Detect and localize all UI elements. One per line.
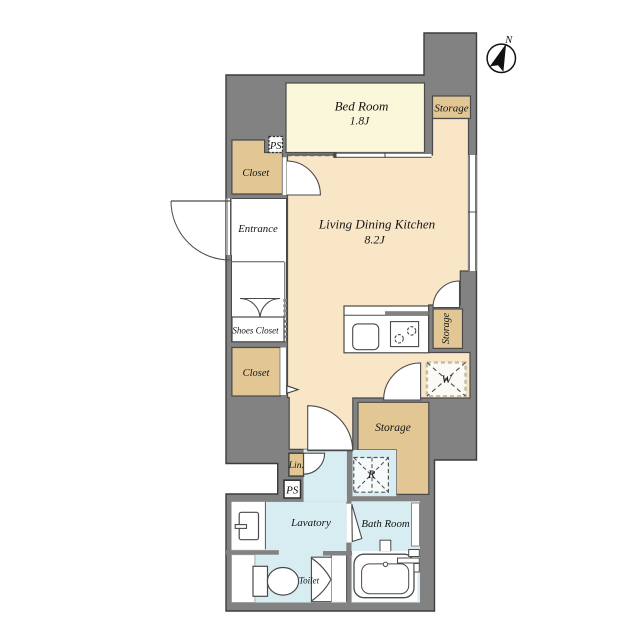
svg-text:Closet: Closet [243, 368, 271, 379]
svg-text:Bed Room: Bed Room [335, 99, 389, 114]
svg-text:Living Dining Kitchen: Living Dining Kitchen [318, 217, 435, 232]
svg-text:N: N [504, 35, 513, 46]
svg-text:Storage: Storage [375, 422, 411, 434]
svg-text:Lin.: Lin. [288, 461, 304, 471]
svg-text:Entrance: Entrance [237, 223, 278, 235]
svg-text:PS: PS [269, 141, 282, 152]
svg-text:Shoes Closet: Shoes Closet [232, 326, 279, 336]
svg-text:1.8J: 1.8J [350, 116, 370, 128]
svg-text:Storage: Storage [434, 103, 468, 115]
svg-text:Toilet: Toilet [299, 576, 320, 586]
svg-text:Bath Room: Bath Room [361, 518, 409, 530]
svg-text:W: W [442, 372, 453, 386]
svg-text:8.2J: 8.2J [364, 233, 385, 247]
svg-text:R: R [367, 467, 376, 481]
svg-text:Lavatory: Lavatory [290, 517, 331, 529]
svg-text:PS: PS [285, 485, 299, 497]
svg-text:Closet: Closet [242, 168, 270, 179]
svg-text:Storage: Storage [441, 312, 452, 344]
